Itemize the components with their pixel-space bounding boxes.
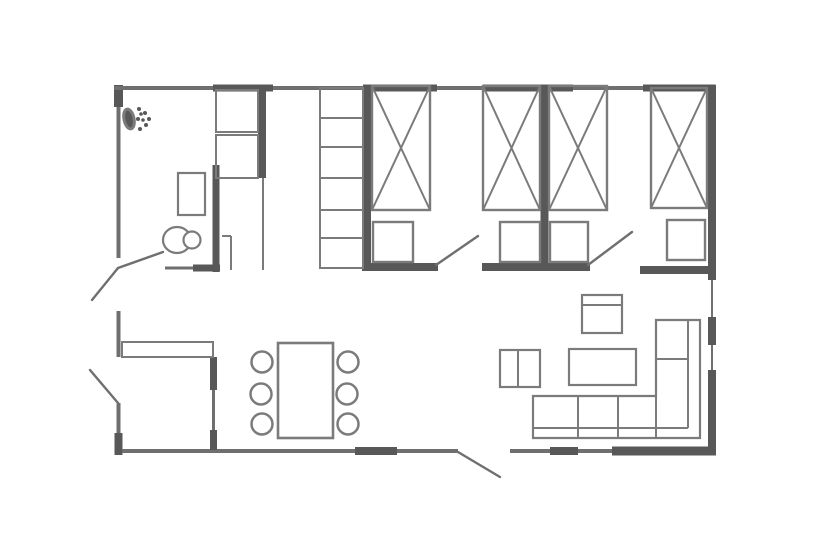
door-bedroom-b-leaf xyxy=(588,232,632,265)
door-entrance-leaf xyxy=(458,452,500,477)
kitchen-counter xyxy=(122,342,213,357)
toilet-tank xyxy=(184,232,201,249)
door-bathroom-leaf-out xyxy=(92,268,118,300)
tv-stand xyxy=(582,295,622,333)
shower-spray-dot xyxy=(144,123,148,127)
nightstand-2 xyxy=(500,222,540,262)
dining-chair-6 xyxy=(338,414,359,435)
door-bedroom-a-leaf xyxy=(436,236,478,265)
shower-spray-dot xyxy=(139,112,143,116)
floor-plan-canvas xyxy=(0,0,830,555)
shower-spray-dot xyxy=(137,107,141,111)
shower-head xyxy=(122,108,136,130)
dining-table xyxy=(278,343,333,438)
dining-chair-4 xyxy=(338,352,359,373)
bathroom-sink xyxy=(178,173,205,215)
coffee-table xyxy=(569,349,636,385)
closet-upper-cell xyxy=(216,90,258,132)
nightstand-4 xyxy=(667,220,705,260)
door-kitchen-leaf xyxy=(90,370,118,403)
floor-plan-page xyxy=(0,0,830,555)
closet-lower-cell xyxy=(216,135,258,178)
dining-chair-1 xyxy=(252,352,273,373)
door-bathroom-leaf-in xyxy=(118,252,163,268)
nightstand-1 xyxy=(373,222,413,262)
sofa-outline xyxy=(533,320,700,438)
shower-spray-dot xyxy=(136,117,140,121)
shower-spray-dot xyxy=(141,118,145,122)
dining-chair-5 xyxy=(337,384,358,405)
nightstand-3 xyxy=(550,222,588,262)
shower-spray-dot xyxy=(138,127,142,131)
dining-chair-2 xyxy=(251,384,272,405)
armchair xyxy=(500,350,540,387)
shower-spray-dot xyxy=(143,111,147,115)
dining-chair-3 xyxy=(252,414,273,435)
shower-spray-dot xyxy=(147,117,151,121)
